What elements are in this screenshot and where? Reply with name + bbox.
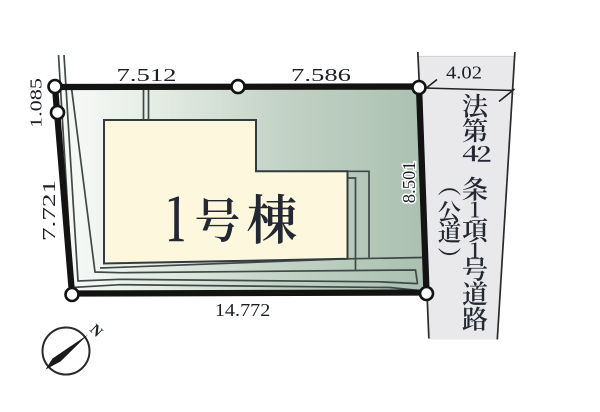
svg-text:7.512: 7.512 <box>117 65 177 85</box>
svg-text:7.586: 7.586 <box>291 65 351 85</box>
svg-text:14.772: 14.772 <box>215 300 271 320</box>
svg-text:8.501: 8.501 <box>399 161 419 203</box>
svg-text:4.02: 4.02 <box>446 63 482 83</box>
svg-text:N: N <box>86 322 105 341</box>
svg-text:7.721: 7.721 <box>39 180 59 241</box>
svg-text:1.085: 1.085 <box>27 78 46 128</box>
